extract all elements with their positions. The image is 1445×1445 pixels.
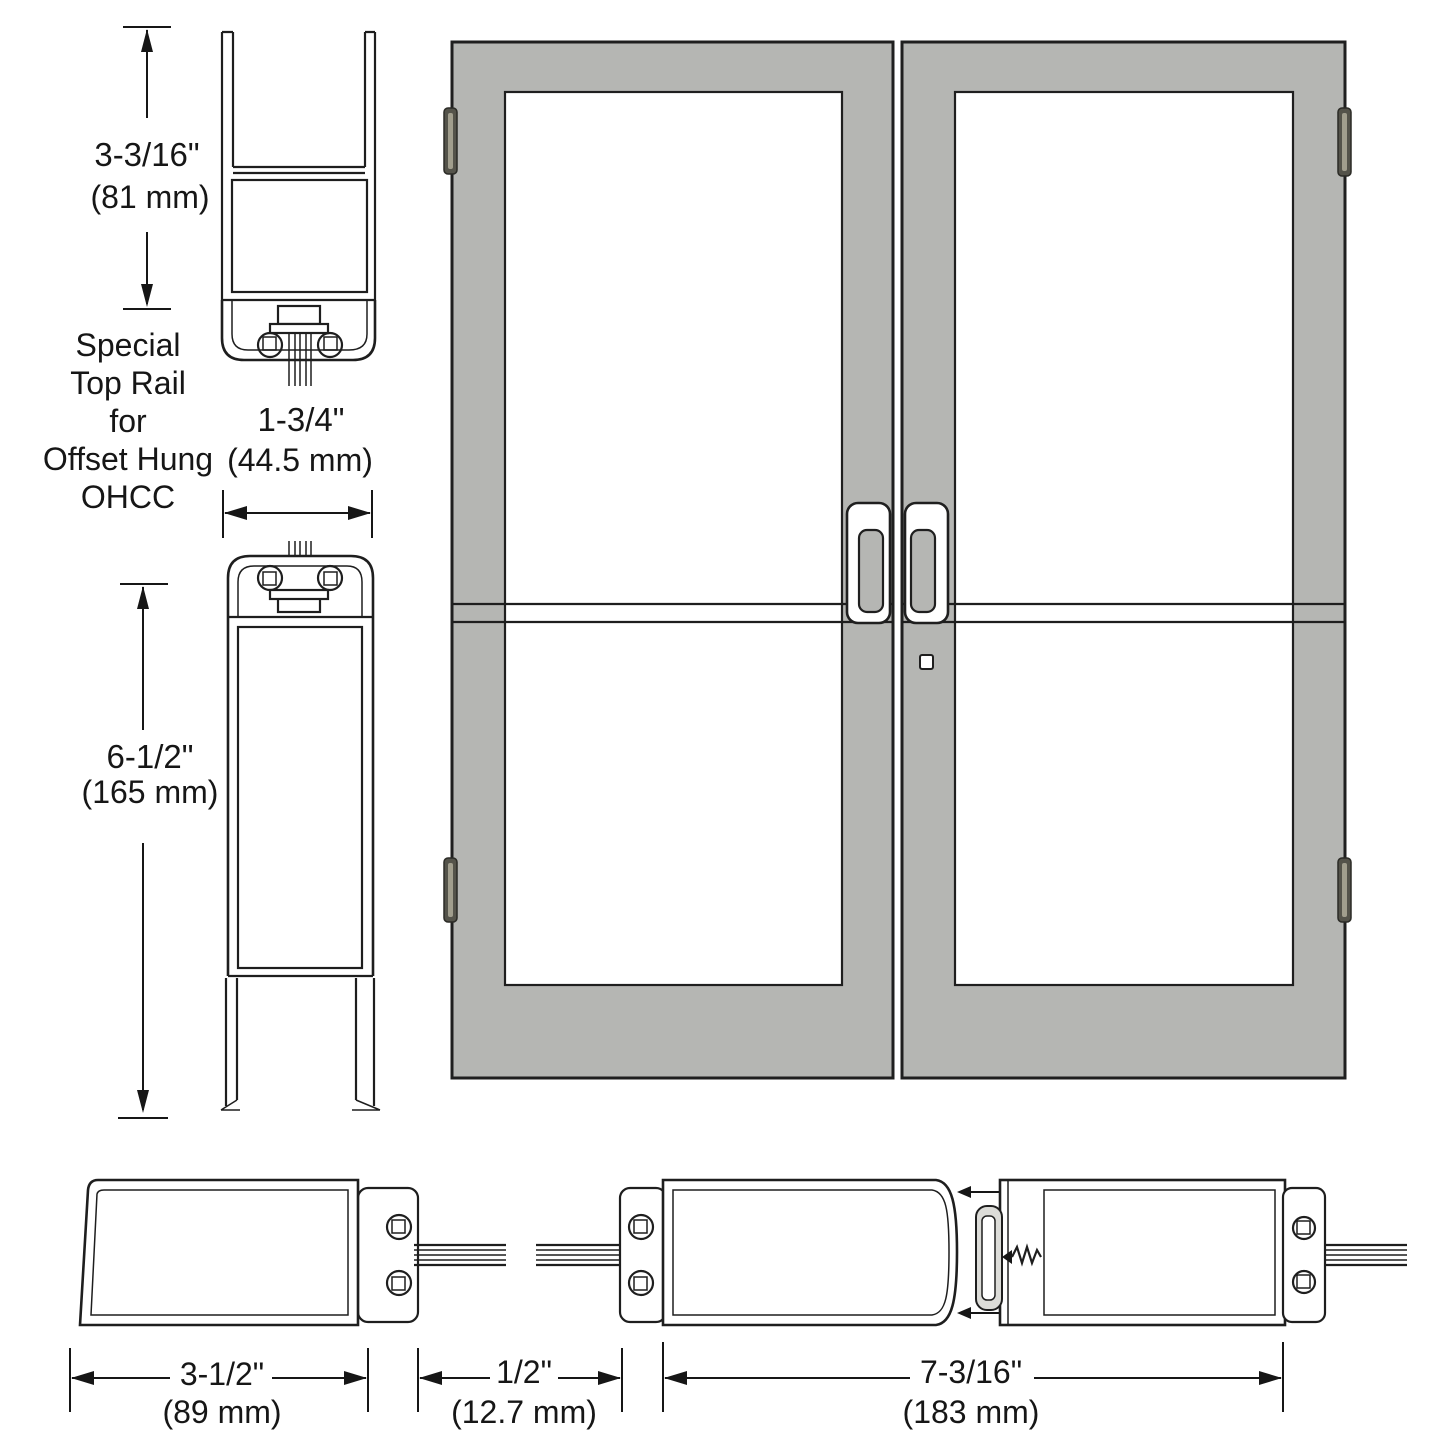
dim-top-rail-height: 3-3/16" (81 mm) <box>90 27 209 309</box>
door-elevation <box>444 42 1351 1078</box>
hinge-bottom-left <box>444 858 457 922</box>
meeting-stiles-section <box>620 1180 1407 1325</box>
drawing-svg: 3-3/16" (81 mm) Special Top Rail for Off… <box>0 0 1445 1445</box>
door-technical-drawing: 3-3/16" (81 mm) Special Top Rail for Off… <box>0 0 1445 1445</box>
left-door-glass <box>505 92 842 985</box>
glass-band-right <box>1325 1245 1407 1265</box>
right-door-pull-handle <box>905 503 948 623</box>
dim-text: 6-1/2" <box>107 738 194 775</box>
hinge-bottom-right <box>1338 858 1351 922</box>
hinge-stile-section <box>80 1180 418 1325</box>
dim-text: (44.5 mm) <box>227 442 373 478</box>
dim-bottom-rail-height: 6-1/2" (165 mm) <box>82 584 219 1118</box>
dim-text: 1-3/4" <box>258 401 345 438</box>
note-line: Top Rail <box>70 365 186 401</box>
dim-text: 7-3/16" <box>920 1354 1022 1390</box>
dim-text: (89 mm) <box>162 1394 281 1430</box>
special-top-rail-note: Special Top Rail for Offset Hung OHCC <box>43 327 213 515</box>
note-line: Offset Hung <box>43 441 213 477</box>
dim-text: (183 mm) <box>903 1394 1040 1430</box>
hinge-top-right <box>1338 108 1351 176</box>
dim-text: (165 mm) <box>82 774 219 810</box>
lock-cylinder <box>920 655 933 669</box>
dim-text: (12.7 mm) <box>451 1394 597 1430</box>
note-line: Special <box>76 327 181 363</box>
dim-text: (81 mm) <box>90 179 209 215</box>
left-door-pull-handle <box>847 503 890 623</box>
dim-glass-gap: 1/2" (12.7 mm) <box>418 1348 622 1430</box>
dim-top-rail-width: 1-3/4" (44.5 mm) <box>223 401 373 538</box>
bottom-rail-section <box>221 541 380 1110</box>
dim-text: 3-1/2" <box>180 1356 264 1392</box>
top-rail-section <box>222 32 375 386</box>
dim-stile-width: 3-1/2" (89 mm) <box>70 1348 368 1430</box>
note-line: OHCC <box>81 479 175 515</box>
glass-band-left <box>414 1245 646 1265</box>
dim-meeting-stiles-width: 7-3/16" (183 mm) <box>663 1342 1283 1430</box>
hinge-top-left <box>444 108 457 174</box>
right-door-glass <box>955 92 1293 985</box>
dim-text: 3-3/16" <box>94 136 199 173</box>
note-line: for <box>109 403 147 439</box>
dim-text: 1/2" <box>496 1354 552 1390</box>
